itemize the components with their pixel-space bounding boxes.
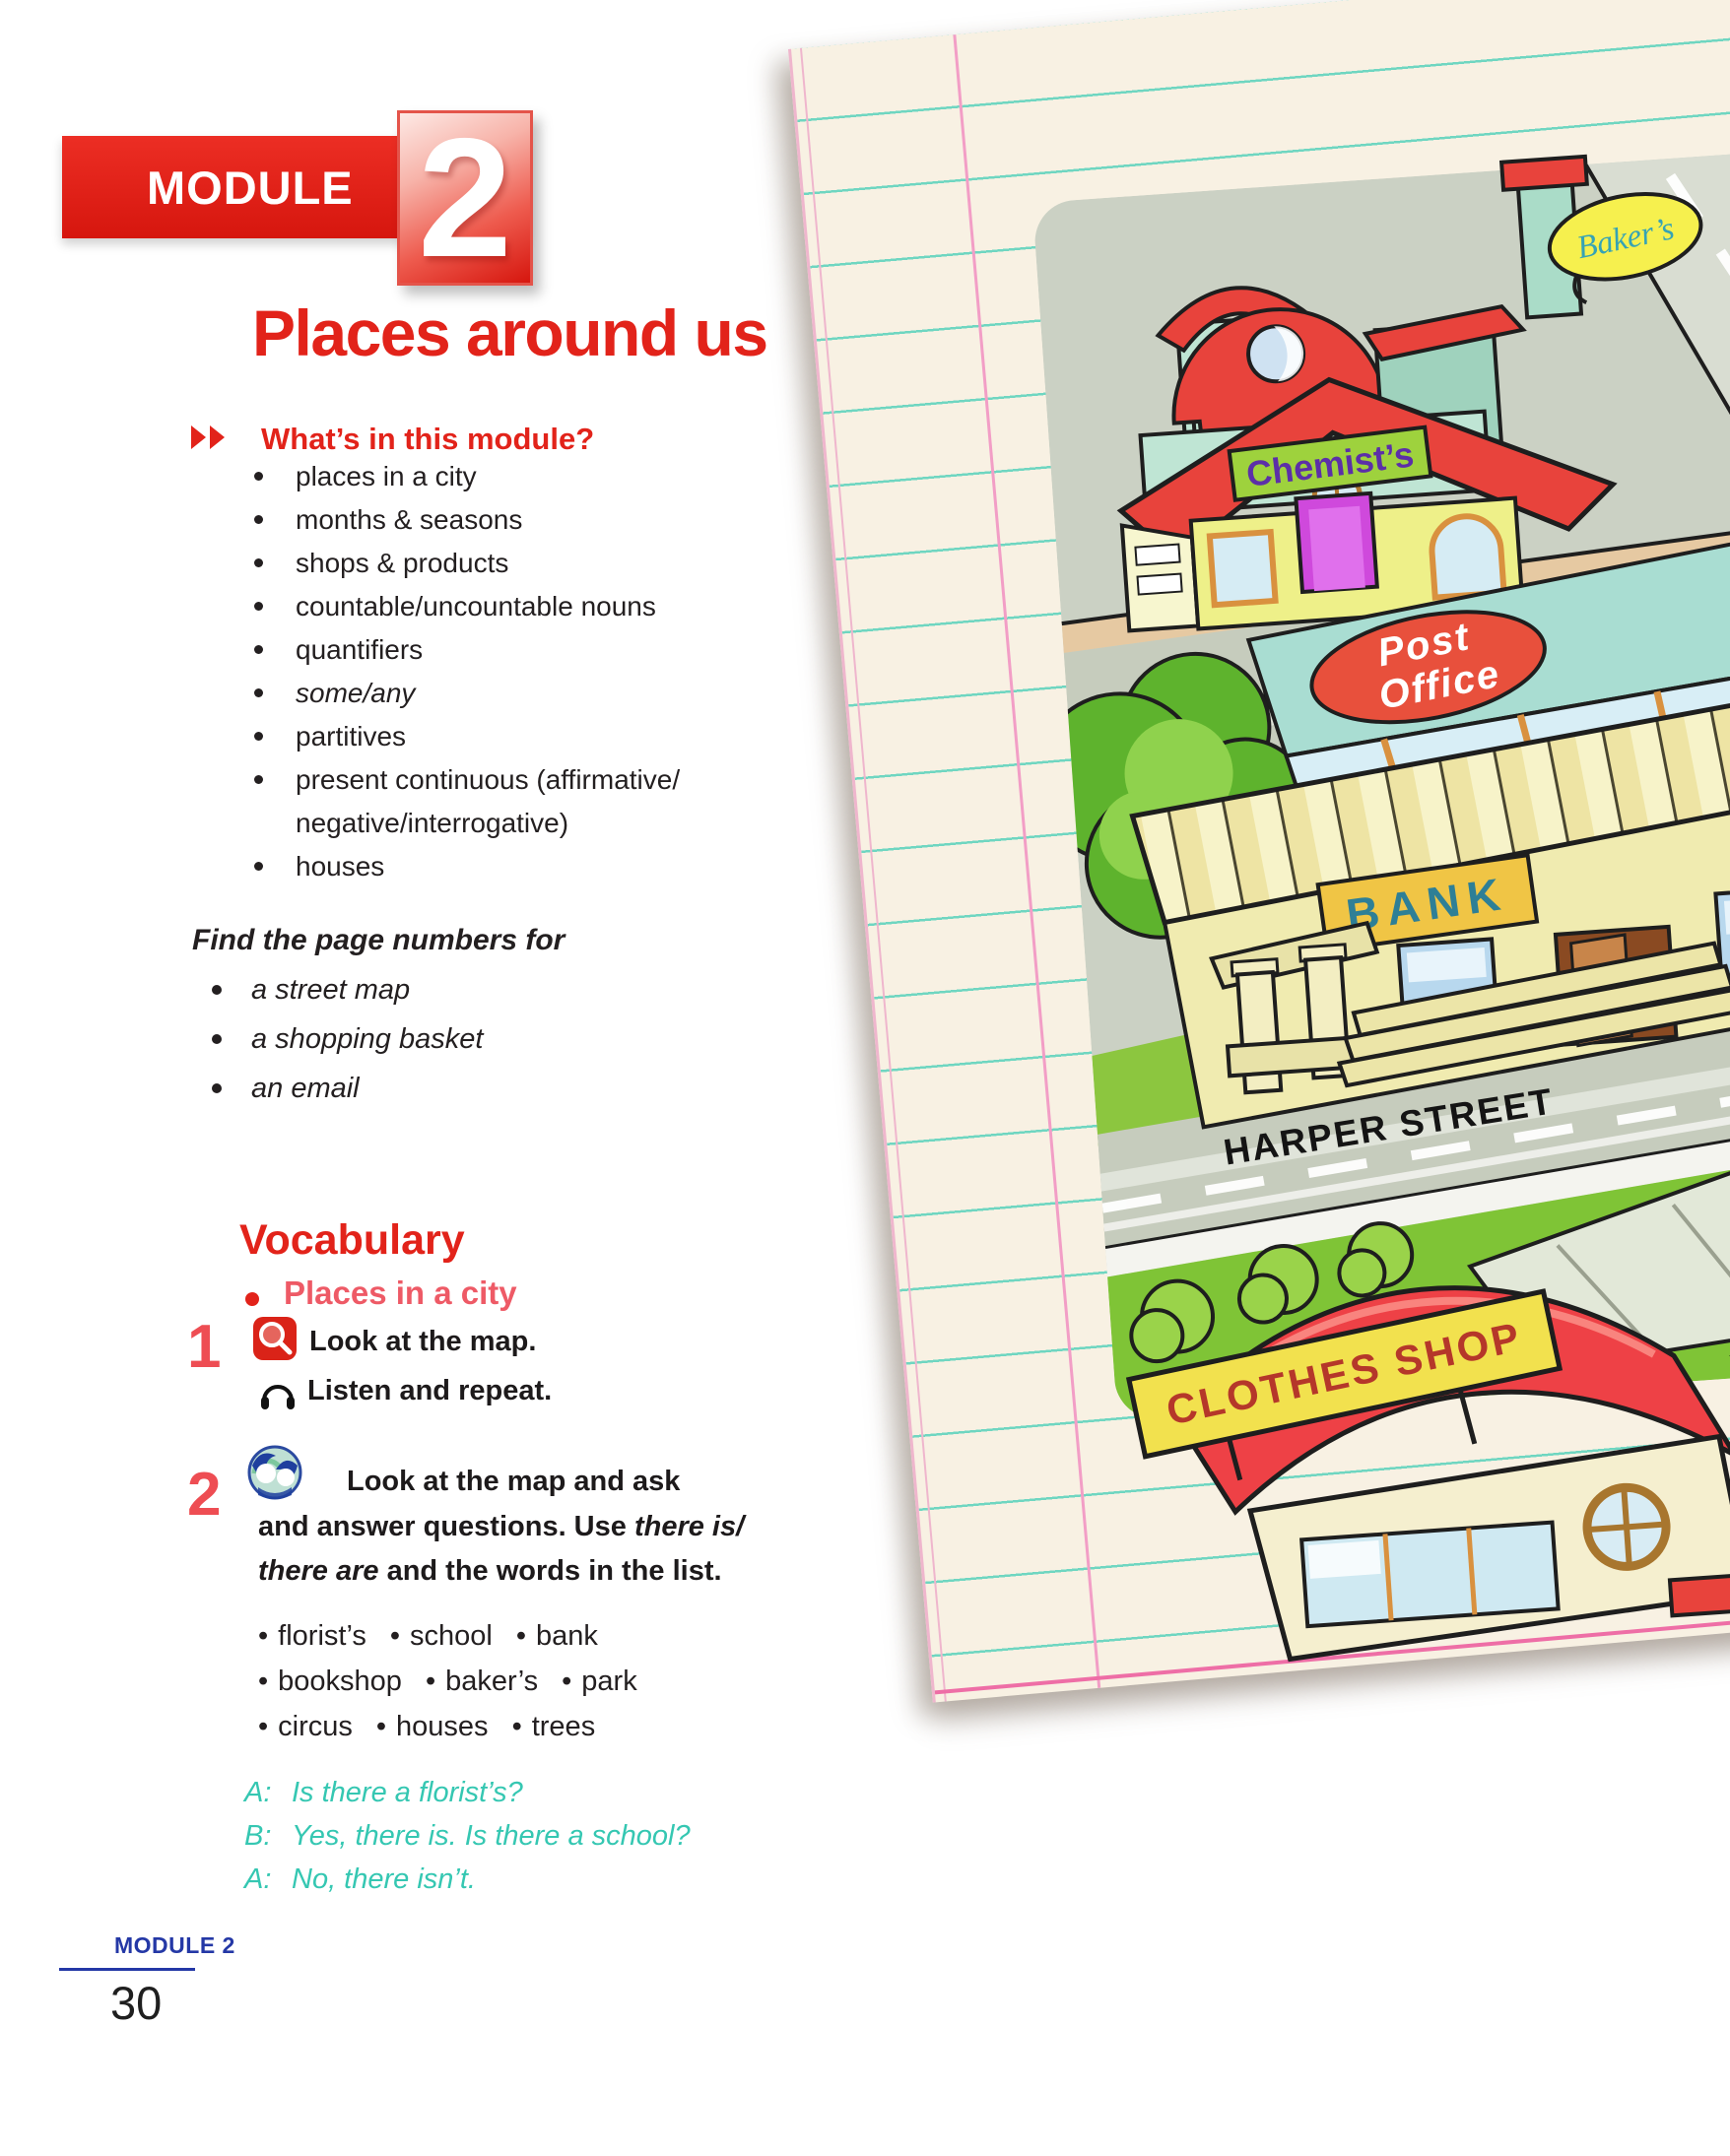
vocabulary-heading: Vocabulary <box>239 1216 465 1265</box>
module-topic-item: places in a city <box>296 455 680 498</box>
word-label: florist’s <box>278 1620 366 1652</box>
module-topic-item: some/any <box>296 672 680 715</box>
exercise-1-instruction-listen: Listen and repeat. <box>307 1375 552 1407</box>
dialogue-line: B:Yes, there is. Is there a school? <box>244 1814 691 1858</box>
module-topics-list: places in a citymonths & seasonsshops & … <box>296 455 680 888</box>
dialogue-line-text: Yes, there is. Is there a school? <box>292 1820 691 1852</box>
exercise-2-instruction-line1: Look at the map and ask <box>347 1466 680 1498</box>
dialogue-line: A:No, there isn’t. <box>244 1858 691 1901</box>
bullet-icon: • <box>516 1620 526 1652</box>
word-list-item: •houses <box>376 1711 489 1742</box>
word-list-item: •bank <box>516 1620 598 1652</box>
find-pages-item: an email <box>251 1064 483 1113</box>
bullet-icon: • <box>390 1620 400 1652</box>
word-label: bookshop <box>278 1666 402 1697</box>
module-topic-item: countable/uncountable nouns <box>296 585 680 628</box>
word-list-item: •florist’s <box>258 1620 366 1652</box>
dialogue-speaker-label: A: <box>244 1858 292 1901</box>
find-pages-list: a street mapa shopping basketan email <box>251 965 483 1113</box>
word-label: park <box>581 1666 636 1697</box>
headphones-icon <box>258 1375 298 1410</box>
magnifier-icon <box>252 1316 298 1361</box>
word-list-item: •trees <box>512 1711 596 1742</box>
paper-edge-line <box>800 48 947 1702</box>
page-title: Places around us <box>252 295 767 370</box>
find-pages-item: a street map <box>251 965 483 1014</box>
dialogue-line: A:Is there a florist’s? <box>244 1771 691 1814</box>
clothes-shop-steps <box>1670 1575 1730 1615</box>
word-label: bank <box>536 1620 598 1652</box>
word-list: •florist’s•school•bank•bookshop•baker’s•… <box>258 1613 661 1749</box>
module-topic-item: present continuous (affirmative/ negativ… <box>296 758 680 845</box>
word-list-item: •school <box>390 1620 493 1652</box>
word-list-item: •bookshop <box>258 1666 402 1697</box>
module-topic-item: shops & products <box>296 542 680 585</box>
exercise-2-line2-italic: there is/ <box>634 1511 744 1542</box>
exercise-2-line3-italic: there are <box>258 1555 379 1587</box>
double-chevron-icon <box>191 425 231 449</box>
dialogue-line-text: No, there isn’t. <box>292 1863 476 1895</box>
word-list-item: •park <box>562 1666 637 1697</box>
word-label: trees <box>532 1711 595 1742</box>
exercise-2-line3-plain: and the words in the list. <box>379 1555 722 1587</box>
word-list-item: •circus <box>258 1711 353 1742</box>
bullet-icon: • <box>562 1666 571 1697</box>
module-topic-item: months & seasons <box>296 498 680 542</box>
bullet-icon: • <box>258 1711 268 1742</box>
dialogue-speaker-label: A: <box>244 1771 292 1814</box>
module-number-box: 2 <box>397 110 533 286</box>
word-label: school <box>410 1620 493 1652</box>
dialogue-speaker-label: B: <box>244 1814 292 1858</box>
vocabulary-subheading: Places in a city <box>284 1274 517 1312</box>
city-map-illustration: MILTON STREET <box>1020 129 1730 1710</box>
word-list-row: •bookshop•baker’s•park <box>258 1659 661 1704</box>
textbook-page: MILTON STREET <box>0 0 1730 2156</box>
word-label: baker’s <box>445 1666 538 1697</box>
footer-rule <box>59 1968 195 1971</box>
bullet-icon: • <box>512 1711 522 1742</box>
exercise-1-instruction-look: Look at the map. <box>309 1326 536 1358</box>
whats-in-module-heading: What’s in this module? <box>261 422 594 457</box>
exercise-2-instruction-line3: there are and the words in the list. <box>258 1555 722 1588</box>
module-banner-label: MODULE <box>147 136 354 238</box>
word-label: houses <box>396 1711 489 1742</box>
bullet-icon: • <box>258 1620 268 1652</box>
bullet-icon: • <box>426 1666 435 1697</box>
chemists-arched-window <box>1430 514 1503 598</box>
module-number: 2 <box>418 124 512 272</box>
pairwork-icon <box>246 1444 303 1501</box>
exercise-1-number: 1 <box>187 1312 221 1382</box>
bullet-icon: • <box>376 1711 386 1742</box>
footer-module-label: MODULE 2 <box>114 1932 235 1959</box>
exercise-2-instruction-line2: and answer questions. Use there is/ <box>258 1511 744 1543</box>
exercise-2-number: 2 <box>187 1460 221 1530</box>
bullet-icon: • <box>258 1666 268 1697</box>
example-dialogue: A:Is there a florist’s?B:Yes, there is. … <box>244 1771 691 1901</box>
exercise-2-line2-plain: and answer questions. Use <box>258 1511 634 1542</box>
bullet-icon <box>245 1292 259 1306</box>
word-list-row: •circus•houses•trees <box>258 1704 661 1749</box>
word-list-row: •florist’s•school•bank <box>258 1613 661 1659</box>
find-pages-item: a shopping basket <box>251 1014 483 1064</box>
word-list-item: •baker’s <box>426 1666 538 1697</box>
word-label: circus <box>278 1711 353 1742</box>
module-topic-item: quantifiers <box>296 628 680 672</box>
find-pages-heading: Find the page numbers for <box>192 924 565 957</box>
dialogue-line-text: Is there a florist’s? <box>292 1777 523 1808</box>
module-topic-item: houses <box>296 845 680 888</box>
module-topic-item: partitives <box>296 715 680 758</box>
chemists-window <box>1210 532 1276 605</box>
footer-page-number: 30 <box>110 1976 162 2030</box>
